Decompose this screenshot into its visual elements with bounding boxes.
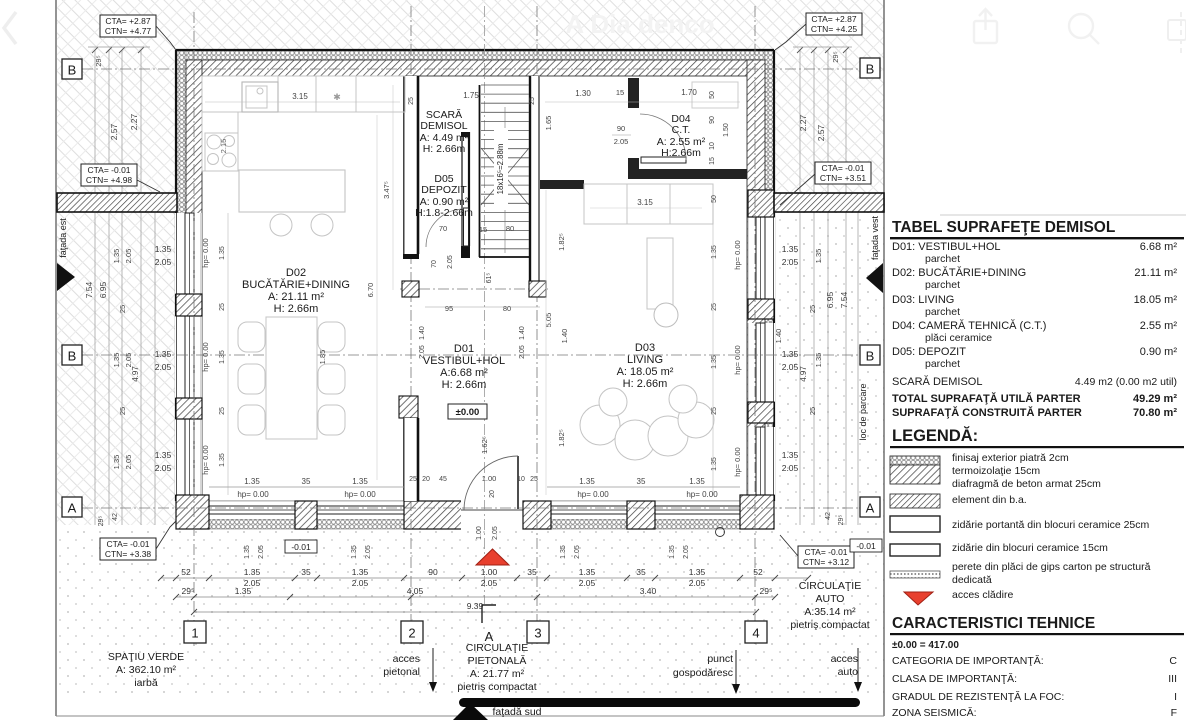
svg-text:H: 2.66m: H: 2.66m bbox=[442, 379, 487, 391]
svg-text:3.15: 3.15 bbox=[292, 92, 308, 101]
svg-text:2.15: 2.15 bbox=[219, 139, 228, 154]
svg-text:F: F bbox=[1171, 707, 1177, 719]
svg-text:hp= 0.00: hp= 0.00 bbox=[201, 238, 210, 267]
svg-text:4.05: 4.05 bbox=[407, 586, 424, 596]
svg-text:6.95: 6.95 bbox=[825, 291, 835, 308]
svg-text:7.54: 7.54 bbox=[839, 291, 849, 308]
svg-text:CTN= +4.98: CTN= +4.98 bbox=[86, 175, 133, 185]
svg-text:CTA= +2.87: CTA= +2.87 bbox=[105, 16, 150, 26]
svg-text:1.35: 1.35 bbox=[244, 567, 261, 577]
svg-text:5.05: 5.05 bbox=[544, 313, 553, 328]
svg-text:H: 2.66m: H: 2.66m bbox=[274, 303, 319, 315]
svg-text:15: 15 bbox=[479, 225, 487, 234]
svg-text:D03: LIVING: D03: LIVING bbox=[892, 294, 954, 306]
svg-text:faţada vest: faţada vest bbox=[870, 215, 880, 260]
svg-text:loc de parcare: loc de parcare bbox=[858, 383, 868, 440]
svg-text:35: 35 bbox=[302, 477, 311, 486]
svg-text:25: 25 bbox=[219, 303, 226, 311]
svg-text:A Dia denco: A Dia denco bbox=[565, 9, 714, 39]
svg-text:1.00: 1.00 bbox=[481, 567, 498, 577]
svg-text:29⁵: 29⁵ bbox=[98, 516, 105, 527]
svg-text:2.05: 2.05 bbox=[124, 249, 133, 264]
svg-text:hp= 0.00: hp= 0.00 bbox=[686, 490, 718, 499]
svg-text:1.75: 1.75 bbox=[463, 91, 479, 100]
svg-text:1.35: 1.35 bbox=[669, 545, 676, 559]
svg-text:2.05: 2.05 bbox=[155, 463, 172, 473]
svg-text:2.05: 2.05 bbox=[782, 362, 799, 372]
svg-text:15: 15 bbox=[709, 157, 716, 165]
svg-text:parchet: parchet bbox=[925, 306, 960, 318]
svg-text:hp= 0.00: hp= 0.00 bbox=[577, 490, 609, 499]
svg-text:DEPOZIT: DEPOZIT bbox=[421, 184, 467, 196]
svg-text:2.05: 2.05 bbox=[683, 545, 690, 559]
svg-text:A: A bbox=[866, 501, 875, 516]
svg-text:CIRCULAŢIE: CIRCULAŢIE bbox=[799, 580, 861, 592]
svg-text:20: 20 bbox=[489, 490, 496, 498]
svg-text:3.40: 3.40 bbox=[640, 586, 657, 596]
svg-text:1.35: 1.35 bbox=[235, 586, 252, 596]
svg-text:hp= 0.00: hp= 0.00 bbox=[201, 445, 210, 474]
svg-text:1.35: 1.35 bbox=[711, 245, 718, 259]
svg-text:CTN= +3.51: CTN= +3.51 bbox=[820, 173, 867, 183]
svg-text:2.05: 2.05 bbox=[782, 463, 799, 473]
svg-text:CTN= +4.25: CTN= +4.25 bbox=[811, 24, 858, 34]
svg-text:A:35.14 m²: A:35.14 m² bbox=[804, 606, 856, 618]
svg-text:III: III bbox=[1168, 673, 1177, 685]
svg-text:BUCĂTĂRIE+DINING: BUCĂTĂRIE+DINING bbox=[242, 278, 350, 291]
svg-text:2.05: 2.05 bbox=[447, 255, 454, 269]
svg-text:parchet: parchet bbox=[925, 358, 960, 370]
svg-text:perete din plăci de gips carto: perete din plăci de gips carton pe struc… bbox=[952, 561, 1151, 573]
svg-text:80: 80 bbox=[506, 224, 514, 233]
svg-text:2.05: 2.05 bbox=[352, 578, 369, 588]
svg-text:1.35: 1.35 bbox=[814, 249, 823, 264]
svg-text:1.35: 1.35 bbox=[689, 567, 706, 577]
svg-text:D05: DEPOZIT: D05: DEPOZIT bbox=[892, 346, 966, 358]
svg-text:H: 2.66m: H: 2.66m bbox=[423, 143, 466, 155]
svg-text:D04: CAMERĂ TEHNICĂ (C.T.): D04: CAMERĂ TEHNICĂ (C.T.) bbox=[892, 319, 1046, 332]
svg-text:1.40: 1.40 bbox=[774, 329, 783, 344]
svg-text:70: 70 bbox=[439, 224, 447, 233]
svg-text:finisaj exterior piatră 2cm: finisaj exterior piatră 2cm bbox=[952, 452, 1069, 464]
svg-text:1.35: 1.35 bbox=[155, 244, 172, 254]
svg-text:25: 25 bbox=[219, 407, 226, 415]
svg-text:A: 21.77 m²: A: 21.77 m² bbox=[470, 668, 525, 680]
svg-text:SPAŢIU VERDE: SPAŢIU VERDE bbox=[108, 651, 184, 663]
svg-text:gospodăresc: gospodăresc bbox=[673, 667, 733, 679]
svg-text:25: 25 bbox=[711, 303, 718, 311]
svg-text:CARACTERISTICI TEHNICE: CARACTERISTICI TEHNICE bbox=[892, 615, 1095, 632]
svg-text:1.40: 1.40 bbox=[419, 326, 426, 340]
svg-text:hp= 0.00: hp= 0.00 bbox=[344, 490, 376, 499]
svg-text:CTA= -0.01: CTA= -0.01 bbox=[87, 165, 130, 175]
svg-text:2.27: 2.27 bbox=[129, 113, 139, 130]
svg-text:parchet: parchet bbox=[925, 253, 960, 265]
svg-text:35: 35 bbox=[636, 567, 646, 577]
svg-text:50: 50 bbox=[709, 91, 716, 99]
svg-text:1.65: 1.65 bbox=[544, 116, 553, 131]
svg-text:-0.01: -0.01 bbox=[291, 542, 311, 552]
svg-text:zidărie din blocuri ceramice 1: zidărie din blocuri ceramice 15cm bbox=[952, 542, 1108, 554]
svg-text:CIRCULAŢIE: CIRCULAŢIE bbox=[466, 642, 528, 654]
svg-text:SUPRAFAŢĂ CONSTRUITĂ PARTER: SUPRAFAŢĂ CONSTRUITĂ PARTER bbox=[892, 406, 1082, 419]
svg-text:parchet: parchet bbox=[925, 279, 960, 291]
svg-text:29⁵: 29⁵ bbox=[838, 515, 845, 526]
svg-text:hp= 0.00: hp= 0.00 bbox=[733, 447, 742, 476]
svg-text:49.29 m²: 49.29 m² bbox=[1133, 393, 1177, 405]
svg-text:1.85: 1.85 bbox=[318, 350, 327, 365]
svg-text:0.90 m²: 0.90 m² bbox=[1140, 346, 1178, 358]
svg-text:3.15: 3.15 bbox=[637, 198, 653, 207]
svg-text:1.35: 1.35 bbox=[219, 246, 226, 260]
svg-text:CTA= -0.01: CTA= -0.01 bbox=[804, 547, 847, 557]
svg-text:DEMISOL: DEMISOL bbox=[420, 120, 467, 132]
svg-text:auto: auto bbox=[838, 666, 859, 678]
svg-text:35: 35 bbox=[637, 477, 646, 486]
svg-text:punct: punct bbox=[707, 653, 733, 665]
svg-text:1.35: 1.35 bbox=[219, 453, 226, 467]
svg-text:29⁵: 29⁵ bbox=[94, 55, 103, 66]
svg-text:1.35: 1.35 bbox=[155, 450, 172, 460]
svg-text:B: B bbox=[68, 349, 77, 364]
svg-text:1.35: 1.35 bbox=[579, 567, 596, 577]
svg-text:C.T.: C.T. bbox=[672, 124, 691, 136]
svg-text:25: 25 bbox=[530, 476, 538, 483]
svg-text:CTN= +4.77: CTN= +4.77 bbox=[105, 26, 152, 36]
svg-text:element din b.a.: element din b.a. bbox=[952, 494, 1027, 506]
svg-text:acces: acces bbox=[393, 653, 420, 665]
svg-text:A: 21.11 m²: A: 21.11 m² bbox=[268, 291, 324, 303]
svg-text:pietriş compactat: pietriş compactat bbox=[790, 619, 869, 631]
svg-text:6.95: 6.95 bbox=[98, 281, 108, 298]
svg-text:2.05: 2.05 bbox=[365, 545, 372, 559]
svg-text:acces: acces bbox=[831, 653, 858, 665]
svg-text:2.05: 2.05 bbox=[492, 526, 499, 540]
svg-text:plăci ceramice: plăci ceramice bbox=[925, 332, 992, 344]
svg-text:1.50: 1.50 bbox=[723, 123, 730, 137]
svg-text:10: 10 bbox=[517, 476, 525, 483]
svg-text:18x16⁵=2.88m: 18x16⁵=2.88m bbox=[496, 144, 505, 195]
svg-text:1.35: 1.35 bbox=[244, 545, 251, 559]
svg-text:A: 18.05 m²: A: 18.05 m² bbox=[617, 366, 674, 378]
svg-text:-0.01: -0.01 bbox=[856, 541, 876, 551]
svg-text:AUTO: AUTO bbox=[816, 593, 845, 605]
svg-text:2: 2 bbox=[408, 626, 415, 641]
svg-text:6.68 m²: 6.68 m² bbox=[1140, 241, 1178, 253]
svg-text:4.97: 4.97 bbox=[799, 366, 808, 382]
svg-text:GRADUL DE REZISTENŢĂ LA FOC:: GRADUL DE REZISTENŢĂ LA FOC: bbox=[892, 690, 1064, 703]
svg-text:A:6.68 m²: A:6.68 m² bbox=[440, 367, 488, 379]
svg-text:35: 35 bbox=[527, 567, 537, 577]
svg-text:1.35: 1.35 bbox=[352, 567, 369, 577]
svg-text:25: 25 bbox=[808, 305, 817, 313]
svg-text:ZONA SEISMICĂ:: ZONA SEISMICĂ: bbox=[892, 706, 977, 719]
svg-text:2.57: 2.57 bbox=[816, 124, 826, 141]
svg-text:1.35: 1.35 bbox=[219, 350, 226, 364]
svg-text:52: 52 bbox=[753, 567, 763, 577]
svg-text:CTN= +3.12: CTN= +3.12 bbox=[803, 557, 850, 567]
svg-text:15: 15 bbox=[616, 88, 624, 97]
svg-text:hp= 0.00: hp= 0.00 bbox=[733, 240, 742, 269]
svg-text:H: 2.66m: H: 2.66m bbox=[623, 378, 668, 390]
svg-text:2.05: 2.05 bbox=[579, 578, 596, 588]
svg-text:4.97: 4.97 bbox=[131, 366, 140, 382]
svg-text:3: 3 bbox=[534, 626, 541, 641]
svg-text:✱: ✱ bbox=[333, 92, 341, 102]
svg-text:±0.00: ±0.00 bbox=[456, 407, 480, 418]
svg-text:1.35: 1.35 bbox=[711, 457, 718, 471]
svg-text:CTA= +2.87: CTA= +2.87 bbox=[811, 14, 856, 24]
svg-text:1.35: 1.35 bbox=[782, 450, 799, 460]
svg-text:29⁵: 29⁵ bbox=[831, 51, 840, 62]
svg-text:18.05 m²: 18.05 m² bbox=[1134, 294, 1178, 306]
svg-text:B: B bbox=[866, 349, 875, 364]
svg-text:LEGENDĂ:: LEGENDĂ: bbox=[892, 426, 978, 445]
svg-text:PIETONALĂ: PIETONALĂ bbox=[468, 654, 527, 667]
svg-text:CTN= +3.38: CTN= +3.38 bbox=[105, 549, 152, 559]
svg-text:2.05: 2.05 bbox=[574, 545, 581, 559]
svg-text:10: 10 bbox=[709, 142, 716, 150]
svg-text:61⁵: 61⁵ bbox=[486, 273, 493, 284]
svg-text:LIVING: LIVING bbox=[627, 354, 663, 366]
svg-text:2.05: 2.05 bbox=[258, 545, 265, 559]
svg-text:TABEL SUPRAFEŢE DEMISOL: TABEL SUPRAFEŢE DEMISOL bbox=[892, 219, 1115, 236]
svg-text:1.35: 1.35 bbox=[782, 244, 799, 254]
svg-text:SCARĂ DEMISOL: SCARĂ DEMISOL bbox=[892, 375, 982, 388]
svg-text:1.40: 1.40 bbox=[519, 326, 526, 340]
svg-text:2.27: 2.27 bbox=[798, 114, 808, 131]
svg-text:2.05: 2.05 bbox=[155, 362, 172, 372]
svg-text:hp= 0.00: hp= 0.00 bbox=[201, 342, 210, 371]
svg-text:9.39: 9.39 bbox=[467, 601, 484, 611]
svg-text:4.49 m2 (0.00 m2 util): 4.49 m2 (0.00 m2 util) bbox=[1075, 376, 1177, 388]
svg-text:1.35: 1.35 bbox=[155, 349, 172, 359]
svg-text:2.55 m²: 2.55 m² bbox=[1140, 320, 1178, 332]
svg-text:D03: D03 bbox=[635, 342, 655, 354]
svg-text:1.70: 1.70 bbox=[681, 88, 697, 97]
svg-text:pietriş compactat: pietriş compactat bbox=[457, 681, 536, 693]
svg-text:25: 25 bbox=[118, 305, 127, 313]
svg-text:90: 90 bbox=[709, 116, 716, 124]
svg-text:pietonal: pietonal bbox=[383, 666, 420, 678]
svg-text:1.35: 1.35 bbox=[560, 545, 567, 559]
svg-text:3.47⁵: 3.47⁵ bbox=[382, 181, 391, 199]
svg-text:2.05: 2.05 bbox=[481, 578, 498, 588]
svg-text:1: 1 bbox=[191, 626, 198, 641]
svg-text:1.35: 1.35 bbox=[689, 477, 705, 486]
svg-text:hp= 0.00: hp= 0.00 bbox=[237, 490, 269, 499]
svg-text:90: 90 bbox=[617, 124, 625, 133]
svg-text:2.05: 2.05 bbox=[155, 257, 172, 267]
svg-text:D01: VESTIBUL+HOL: D01: VESTIBUL+HOL bbox=[892, 241, 1001, 253]
svg-text:95: 95 bbox=[445, 304, 453, 313]
svg-text:D02: BUCĂTĂRIE+DINING: D02: BUCĂTĂRIE+DINING bbox=[892, 266, 1026, 279]
svg-text:1.35: 1.35 bbox=[579, 477, 595, 486]
svg-text:2.05: 2.05 bbox=[419, 345, 426, 359]
svg-text:zidărie portantă din blocuri c: zidărie portantă din blocuri ceramice 25… bbox=[952, 519, 1150, 531]
svg-text:CLASA DE IMPORTANŢĂ:: CLASA DE IMPORTANŢĂ: bbox=[892, 672, 1017, 685]
svg-text:1.35: 1.35 bbox=[711, 355, 718, 369]
svg-text:1.35: 1.35 bbox=[244, 477, 260, 486]
svg-text:42: 42 bbox=[112, 513, 119, 521]
svg-text:6.70: 6.70 bbox=[366, 283, 375, 298]
svg-text:acces clădire: acces clădire bbox=[952, 589, 1013, 601]
svg-text:D02: D02 bbox=[286, 267, 306, 279]
svg-text:2.05: 2.05 bbox=[124, 455, 133, 470]
svg-text:TOTAL SUPRAFAŢĂ UTILĂ PARTER: TOTAL SUPRAFAŢĂ UTILĂ PARTER bbox=[892, 392, 1081, 405]
svg-text:70.80 m²: 70.80 m² bbox=[1133, 407, 1177, 419]
svg-text:50: 50 bbox=[711, 195, 718, 203]
svg-text:VESTIBUL+HOL: VESTIBUL+HOL bbox=[423, 355, 505, 367]
svg-text:termoizolaţie 15cm: termoizolaţie 15cm bbox=[952, 465, 1040, 477]
svg-text:25: 25 bbox=[529, 97, 536, 105]
svg-text:7.54: 7.54 bbox=[84, 281, 94, 298]
svg-text:1.40: 1.40 bbox=[560, 329, 569, 344]
svg-text:1.00: 1.00 bbox=[482, 474, 497, 483]
svg-text:diafragmă de beton armat 25cm: diafragmă de beton armat 25cm bbox=[952, 478, 1101, 490]
svg-text:1.35: 1.35 bbox=[351, 545, 358, 559]
svg-text:52: 52 bbox=[181, 567, 191, 577]
svg-text:45: 45 bbox=[439, 476, 447, 483]
svg-text:A: 362.10 m²: A: 362.10 m² bbox=[116, 664, 177, 676]
svg-text:70: 70 bbox=[431, 260, 438, 268]
svg-text:A: A bbox=[68, 501, 77, 516]
svg-text:I: I bbox=[1174, 691, 1177, 703]
svg-text:2.05: 2.05 bbox=[782, 257, 799, 267]
svg-text:D01: D01 bbox=[454, 343, 474, 355]
svg-text:29⁵: 29⁵ bbox=[182, 586, 195, 596]
svg-text:1.35: 1.35 bbox=[112, 249, 121, 264]
svg-text:25: 25 bbox=[711, 407, 718, 415]
svg-text:20: 20 bbox=[422, 476, 430, 483]
svg-text:±0.00 = 417.00: ±0.00 = 417.00 bbox=[892, 640, 959, 651]
svg-text:25: 25 bbox=[408, 97, 415, 105]
svg-text:42: 42 bbox=[825, 512, 832, 520]
svg-text:29⁵: 29⁵ bbox=[760, 586, 773, 596]
svg-text:2.05: 2.05 bbox=[689, 578, 706, 588]
svg-text:1.00: 1.00 bbox=[476, 526, 483, 540]
svg-text:35: 35 bbox=[301, 567, 311, 577]
svg-text:2.57: 2.57 bbox=[109, 123, 119, 140]
svg-text:iarbă: iarbă bbox=[134, 677, 158, 689]
svg-text:faţada est: faţada est bbox=[58, 218, 68, 258]
svg-text:CTA= -0.01: CTA= -0.01 bbox=[106, 539, 149, 549]
svg-text:25: 25 bbox=[409, 476, 417, 483]
svg-text:CTA= -0.01: CTA= -0.01 bbox=[821, 163, 864, 173]
svg-text:90: 90 bbox=[428, 567, 438, 577]
svg-text:H:2.66m: H:2.66m bbox=[661, 147, 701, 159]
svg-text:4: 4 bbox=[752, 626, 759, 641]
svg-text:1.62⁵: 1.62⁵ bbox=[480, 436, 489, 454]
svg-text:1.35: 1.35 bbox=[782, 349, 799, 359]
svg-text:CATEGORIA DE IMPORTANŢĂ:: CATEGORIA DE IMPORTANŢĂ: bbox=[892, 654, 1044, 667]
svg-text:80: 80 bbox=[503, 304, 511, 313]
svg-text:2.05: 2.05 bbox=[614, 137, 629, 146]
svg-text:2.05: 2.05 bbox=[519, 345, 526, 359]
svg-text:faţadă sud: faţadă sud bbox=[492, 706, 541, 718]
svg-text:1.35: 1.35 bbox=[112, 455, 121, 470]
svg-text:21.11 m²: 21.11 m² bbox=[1134, 267, 1177, 279]
svg-text:H:1.8-2.66m: H:1.8-2.66m bbox=[415, 207, 473, 219]
svg-text:1.35: 1.35 bbox=[352, 477, 368, 486]
svg-text:B: B bbox=[866, 62, 875, 77]
svg-text:dedicată: dedicată bbox=[952, 574, 992, 586]
svg-text:25: 25 bbox=[118, 407, 127, 415]
svg-text:1.82⁵: 1.82⁵ bbox=[557, 233, 566, 251]
svg-text:25: 25 bbox=[808, 407, 817, 415]
svg-text:B: B bbox=[68, 63, 77, 78]
svg-text:1.82⁵: 1.82⁵ bbox=[557, 429, 566, 447]
svg-text:1.30: 1.30 bbox=[575, 89, 591, 98]
svg-text:hp= 0.00: hp= 0.00 bbox=[733, 345, 742, 374]
svg-text:C: C bbox=[1169, 655, 1177, 667]
